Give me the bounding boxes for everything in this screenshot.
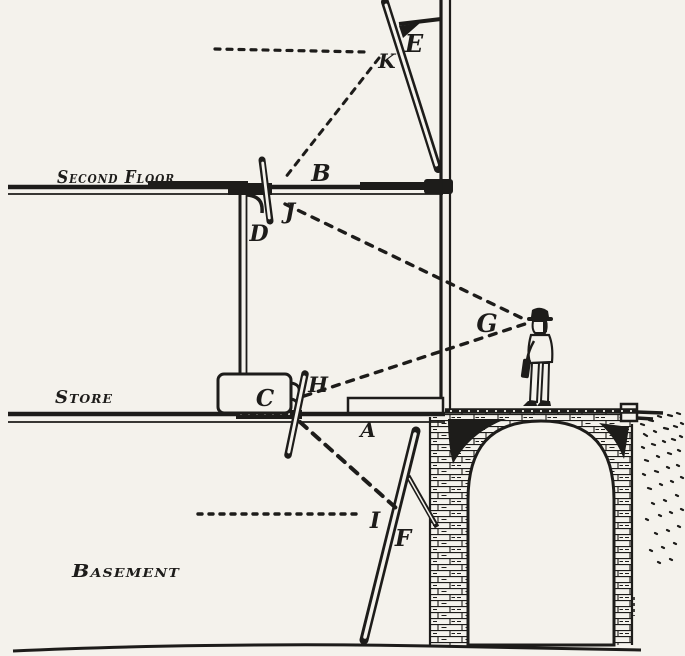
man-right-leg xyxy=(541,363,549,402)
marker-f: F xyxy=(394,525,413,552)
window-platform xyxy=(348,398,443,413)
engraving-figure: Second Floor Store Basement A B C D E F … xyxy=(0,0,685,656)
label-store: Store xyxy=(55,388,113,408)
label-basement: Basement xyxy=(71,562,180,582)
marker-k: K xyxy=(377,49,397,73)
marker-d: D xyxy=(248,221,268,247)
marker-c: C xyxy=(256,385,275,412)
marker-g: G xyxy=(476,309,497,338)
marker-b: B xyxy=(310,160,330,187)
man-hair xyxy=(543,320,547,332)
marker-a: A xyxy=(358,418,376,442)
label-second-floor: Second Floor xyxy=(57,168,175,188)
store-cross-section-diagram: Second Floor Store Basement A B C D E F … xyxy=(0,0,685,656)
marker-e: E xyxy=(404,29,424,58)
counter-box xyxy=(218,374,291,413)
wall-floor-junction-blob xyxy=(424,179,453,194)
man-left-leg xyxy=(530,363,539,402)
arch-opening xyxy=(468,421,614,645)
marker-h: H xyxy=(307,372,329,397)
marker-i: I xyxy=(369,508,381,534)
man-coat xyxy=(529,335,553,363)
